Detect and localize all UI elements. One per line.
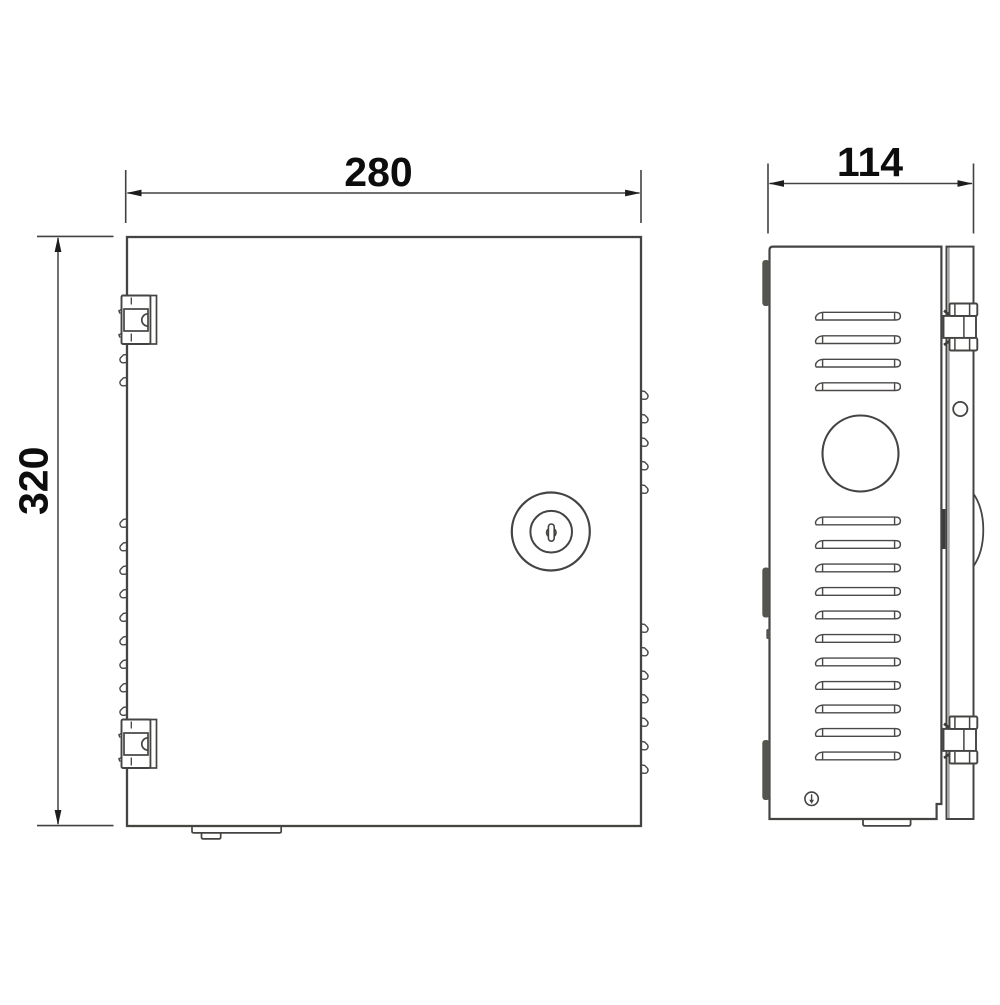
svg-text:280: 280 — [344, 149, 412, 195]
svg-text:114: 114 — [837, 139, 903, 185]
svg-text:320: 320 — [11, 447, 57, 515]
